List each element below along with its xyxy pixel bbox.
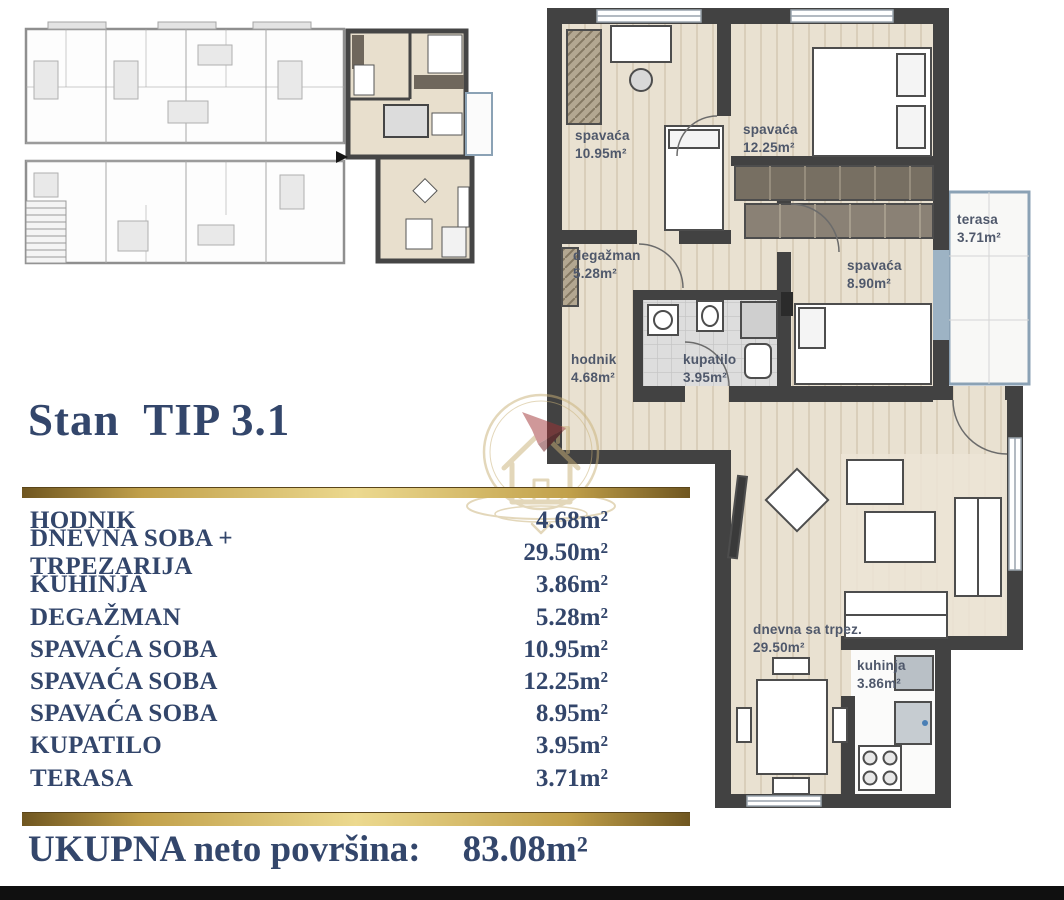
room-area: 3.95m² bbox=[683, 370, 727, 385]
room-area: 3.86m² bbox=[857, 676, 901, 691]
bottom-bar bbox=[0, 886, 1064, 900]
room-name: SPAVAĆA SOBA bbox=[30, 636, 368, 664]
room-area: 29.50m² bbox=[753, 640, 805, 655]
room-name: KUPATILO bbox=[30, 732, 368, 760]
chair bbox=[630, 69, 652, 91]
total-value: 83.08m² bbox=[463, 828, 588, 871]
room-area-value: 3.71m² bbox=[368, 765, 608, 793]
wardrobe-band bbox=[735, 166, 933, 200]
room-area: 10.95m² bbox=[575, 146, 627, 161]
balconies bbox=[48, 22, 311, 29]
room-label: dnevna sa trpez. bbox=[753, 622, 862, 637]
room-name: KUHINJA bbox=[30, 571, 368, 599]
room-row: SPAVAĆA SOBA12.25m² bbox=[30, 666, 608, 698]
room-area: 5.28m² bbox=[573, 266, 617, 281]
room-label: spavaća bbox=[575, 128, 630, 143]
page-title: Stan TIP 3.1 bbox=[28, 394, 290, 446]
shower bbox=[741, 302, 777, 338]
room-label: hodnik bbox=[571, 352, 617, 367]
terrace-door bbox=[933, 250, 949, 340]
room-label: degažman bbox=[573, 248, 641, 263]
total-area-line: UKUPNA neto površina: 83.08m² bbox=[28, 828, 588, 871]
room-label: kupatilo bbox=[683, 352, 736, 367]
room-row: DEGAŽMAN5.28m² bbox=[30, 602, 608, 634]
room-label: kuhinja bbox=[857, 658, 906, 673]
room-name: SPAVAĆA SOBA bbox=[30, 700, 368, 728]
room-area-value: 29.50m² bbox=[368, 539, 608, 567]
room-row: DNEVNA SOBA + TRPEZARIJA29.50m² bbox=[30, 537, 608, 569]
room-area-value: 12.25m² bbox=[368, 668, 608, 696]
armchair bbox=[847, 460, 903, 504]
room-row: SPAVAĆA SOBA8.95m² bbox=[30, 698, 608, 730]
room-area: 8.90m² bbox=[847, 276, 891, 291]
room-label: terasa bbox=[957, 212, 998, 227]
dining-table bbox=[757, 680, 827, 774]
stairwell bbox=[26, 201, 66, 263]
washing-machine bbox=[648, 305, 678, 335]
room-name: SPAVAĆA SOBA bbox=[30, 668, 368, 696]
building-overview-plan bbox=[18, 5, 504, 271]
room-area-value: 5.28m² bbox=[368, 604, 608, 632]
room-area-value: 3.95m² bbox=[368, 732, 608, 760]
room-row: TERASA3.71m² bbox=[30, 763, 608, 795]
wardrobe bbox=[567, 30, 601, 124]
total-label: UKUPNA neto površina: bbox=[28, 828, 421, 871]
coffee-table bbox=[865, 512, 935, 562]
room-area: 12.25m² bbox=[743, 140, 795, 155]
room-area-value: 8.95m² bbox=[368, 700, 608, 728]
gold-divider bbox=[22, 487, 690, 498]
gold-divider bbox=[22, 812, 690, 826]
floor-plan-page: spavaća 10.95m² spavaća 12.25m² spavaća … bbox=[0, 0, 1064, 900]
room-area-value: 3.86m² bbox=[368, 571, 608, 599]
wardrobe-band bbox=[745, 204, 933, 238]
room-area: 3.71m² bbox=[957, 230, 1001, 245]
room-name: TERASA bbox=[30, 765, 368, 793]
room-label: spavaća bbox=[847, 258, 902, 273]
room-row: SPAVAĆA SOBA10.95m² bbox=[30, 634, 608, 666]
room-row: KUPATILO3.95m² bbox=[30, 730, 608, 762]
room-label: spavaća bbox=[743, 122, 798, 137]
room-area-value: 10.95m² bbox=[368, 636, 608, 664]
highlighted-unit bbox=[336, 31, 492, 261]
room-name: DEGAŽMAN bbox=[30, 604, 368, 632]
toilet bbox=[745, 344, 771, 378]
room-summary-list: HODNIK4.68m² DNEVNA SOBA + TRPEZARIJA29.… bbox=[30, 505, 608, 795]
room-area-value: 4.68m² bbox=[368, 507, 608, 535]
desk bbox=[611, 26, 671, 62]
room-row: KUHINJA3.86m² bbox=[30, 569, 608, 601]
